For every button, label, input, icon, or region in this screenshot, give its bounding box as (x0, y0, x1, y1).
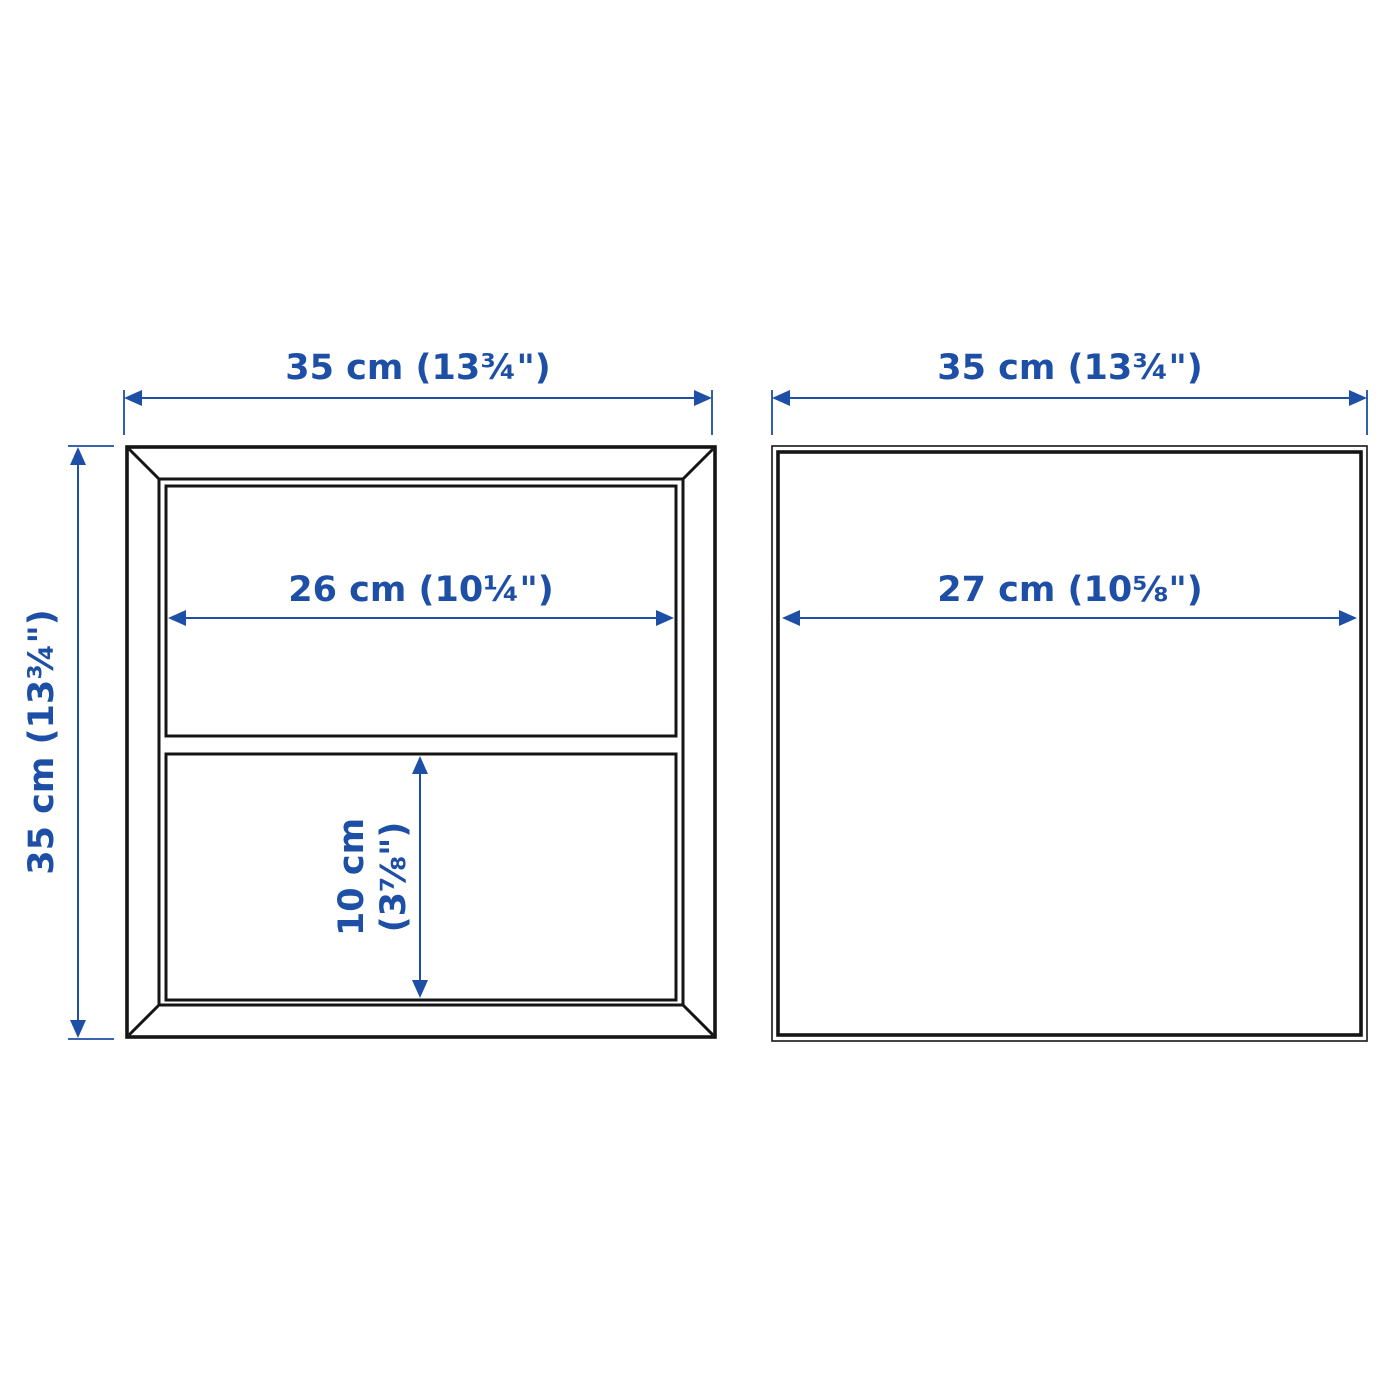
front-inner-height-dimension: 10 cm (3⅞") (332, 756, 428, 998)
front-inner-width-dimension: 26 cm (10¼") (168, 570, 674, 626)
arrowhead-down-icon (412, 980, 428, 998)
arrowhead-up-icon (412, 756, 428, 774)
front-overall-height-label: 35 cm (13¾") (22, 609, 62, 874)
corner-miter-line (683, 1005, 713, 1035)
panel-inner-edge (778, 452, 1361, 1035)
arrowhead-left-icon (124, 390, 142, 406)
side-overall-width-label: 35 cm (13¾") (937, 348, 1202, 388)
arrowhead-left-icon (782, 610, 800, 626)
front-overall-height-dimension: 35 cm (13¾") (22, 446, 114, 1039)
arrowhead-left-icon (772, 390, 790, 406)
side-inner-depth-dimension: 27 cm (10⅝") (782, 570, 1357, 626)
front-overall-width-label: 35 cm (13¾") (285, 348, 550, 388)
side-view: 35 cm (13¾") 27 cm (10⅝") (772, 348, 1367, 1041)
side-overall-width-dimension: 35 cm (13¾") (772, 348, 1367, 435)
front-view: 35 cm (13¾") 35 cm (13¾") (22, 348, 715, 1039)
front-inner-width-label: 26 cm (10¼") (288, 570, 553, 610)
side-inner-depth-label: 27 cm (10⅝") (937, 570, 1202, 610)
front-inner-height-label-line2: (3⅞") (374, 822, 414, 933)
arrowhead-left-icon (168, 610, 186, 626)
front-inner-height-label-line1: 10 cm (332, 818, 372, 936)
arrowhead-right-icon (694, 390, 712, 406)
panel-outer-edge (772, 446, 1367, 1041)
dimension-diagram: 35 cm (13¾") 35 cm (13¾") (0, 0, 1400, 1400)
arrowhead-right-icon (656, 610, 674, 626)
front-overall-width-dimension: 35 cm (13¾") (124, 348, 712, 435)
corner-miter-line (683, 449, 713, 479)
side-panel-outline (772, 446, 1367, 1041)
diagram-svg: 35 cm (13¾") 35 cm (13¾") (0, 0, 1400, 1400)
top-compartment (166, 486, 676, 736)
arrowhead-right-icon (1349, 390, 1367, 406)
corner-miter-line (129, 449, 159, 479)
arrowhead-up-icon (70, 447, 86, 465)
arrowhead-down-icon (70, 1020, 86, 1038)
arrowhead-right-icon (1339, 610, 1357, 626)
corner-miter-line (129, 1005, 159, 1035)
